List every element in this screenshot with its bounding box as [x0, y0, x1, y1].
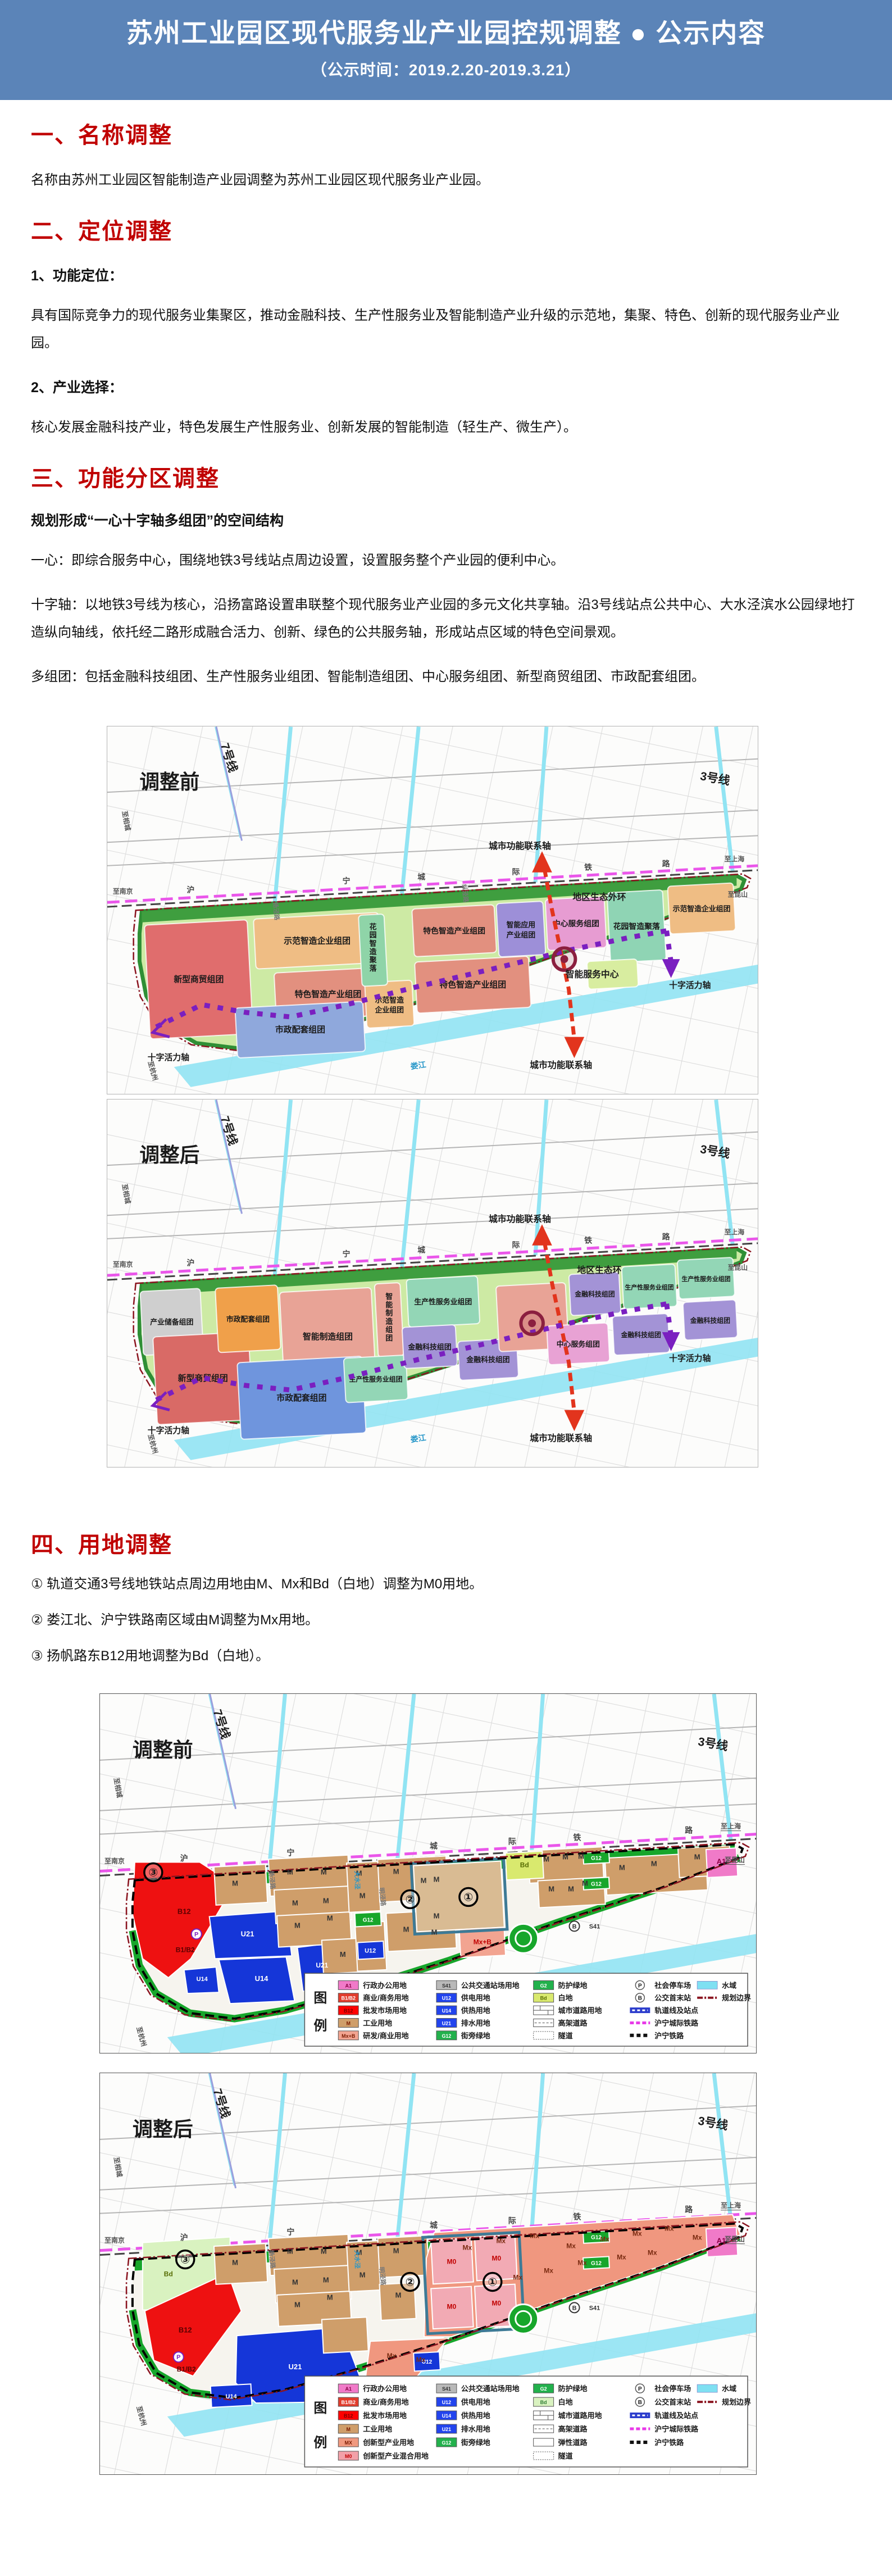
svg-text:Mx: Mx	[544, 2266, 553, 2274]
svg-text:工业用地: 工业用地	[363, 2425, 392, 2433]
svg-text:城: 城	[417, 1245, 425, 1254]
svg-text:白地: 白地	[558, 1993, 573, 2002]
svg-text:至上海: 至上海	[725, 855, 745, 862]
svg-text:M: M	[434, 1875, 440, 1883]
svg-text:社会停车场: 社会停车场	[654, 2384, 691, 2393]
svg-text:M: M	[393, 1867, 399, 1875]
svg-text:调整前: 调整前	[139, 771, 199, 793]
svg-text:图: 图	[313, 1991, 327, 2006]
section3-p3: 多组团：包括金融科技组团、生产性服务业组团、智能制造组团、中心服务组团、新型商贸…	[31, 663, 858, 690]
landuse-item-1: ① 轨道交通3号线地铁站点周边用地由M、Mx和Bd（白地）调整为M0用地。	[31, 1574, 858, 1595]
svg-text:生产性服务业组团: 生产性服务业组团	[349, 1375, 403, 1383]
svg-text:P: P	[638, 2386, 642, 2392]
svg-text:至上海: 至上海	[725, 1228, 745, 1235]
svg-text:宁: 宁	[343, 876, 351, 885]
svg-text:特色智造产业组团: 特色智造产业组团	[423, 926, 485, 935]
svg-text:地区生态环: 地区生态环	[577, 1265, 621, 1275]
svg-text:际: 际	[508, 2216, 516, 2225]
svg-text:S41: S41	[589, 1923, 600, 1930]
svg-text:①: ①	[463, 1891, 473, 1903]
section2-heading: 二、定位调整	[31, 213, 892, 246]
svg-text:M: M	[568, 1884, 574, 1893]
svg-text:B1/B2: B1/B2	[342, 2400, 356, 2405]
svg-text:M: M	[582, 1879, 588, 1887]
svg-text:M: M	[431, 1928, 438, 1936]
svg-text:②: ②	[406, 2276, 415, 2288]
svg-text:③: ③	[148, 1866, 158, 1879]
svg-text:高架道路: 高架道路	[558, 2425, 588, 2433]
svg-text:智能制造组团: 智能制造组团	[385, 1292, 393, 1342]
svg-text:铁: 铁	[574, 2212, 581, 2221]
svg-text:宁: 宁	[343, 1249, 351, 1258]
svg-text:U14: U14	[255, 1974, 269, 1983]
svg-text:十字活力轴: 十字活力轴	[669, 1353, 711, 1363]
svg-text:供电用地: 供电用地	[461, 1993, 490, 2002]
svg-text:M: M	[294, 2300, 301, 2309]
svg-text:白地: 白地	[558, 2398, 573, 2406]
svg-text:M: M	[340, 1950, 346, 1959]
svg-text:至昆山: 至昆山	[728, 1264, 748, 1271]
svg-text:U12: U12	[442, 2400, 451, 2405]
svg-text:城: 城	[417, 872, 425, 881]
svg-text:U21: U21	[289, 2363, 302, 2371]
concept-map-after: 产业储备组团新型商贸组团市政配套组团智能制造组团智能制造组团市政配套组团生产性服…	[107, 1099, 892, 1468]
svg-text:金融科技组团: 金融科技组团	[621, 1331, 661, 1339]
svg-text:供电用地: 供电用地	[461, 2398, 490, 2406]
svg-text:B1/B2: B1/B2	[177, 2365, 196, 2373]
svg-text:花园智造聚落: 花园智造聚落	[369, 922, 377, 972]
svg-text:Mx: Mx	[648, 2248, 657, 2256]
svg-text:Mx: Mx	[665, 2224, 674, 2232]
notice-page: 苏州工业园区现代服务业产业园控规调整 ● 公示内容 （公示时间：2019.2.2…	[0, 0, 892, 2576]
svg-text:智能服务中心: 智能服务中心	[566, 969, 619, 979]
svg-text:P: P	[194, 1931, 198, 1938]
svg-text:M: M	[232, 2258, 238, 2266]
svg-text:A1: A1	[345, 1983, 352, 1988]
svg-text:至南京: 至南京	[104, 2236, 125, 2244]
svg-text:地区生态外环: 地区生态外环	[572, 892, 626, 902]
svg-text:铁: 铁	[584, 1235, 592, 1244]
svg-text:调整后: 调整后	[133, 2118, 193, 2141]
svg-text:至南京: 至南京	[113, 1260, 133, 1268]
svg-text:城: 城	[430, 1841, 438, 1850]
notice-period: （公示时间：2019.2.20-2019.3.21）	[0, 58, 892, 80]
svg-text:街旁绿地: 街旁绿地	[461, 2438, 490, 2447]
svg-text:产业储备组团: 产业储备组团	[150, 1317, 193, 1326]
section3-heading: 三、功能分区调整	[31, 460, 892, 493]
svg-text:U14: U14	[226, 2393, 238, 2400]
svg-text:G12: G12	[591, 1881, 602, 1887]
svg-text:调整前: 调整前	[133, 1738, 193, 1761]
svg-text:B: B	[638, 1995, 642, 2001]
svg-text:至上海: 至上海	[721, 2201, 741, 2209]
landuse-map-before-svg: B12B1/B2U21U14U14U21U12MMMMMMMMMMMMMMMMM…	[99, 1693, 757, 2053]
svg-text:公共交通站场用地: 公共交通站场用地	[461, 1981, 520, 1989]
svg-text:M: M	[393, 2246, 399, 2255]
svg-text:M: M	[359, 1891, 366, 1900]
svg-text:Mx: Mx	[496, 2237, 506, 2245]
concept-map-after-svg: 产业储备组团新型商贸组团市政配套组团智能制造组团智能制造组团市政配套组团生产性服…	[107, 1099, 758, 1468]
svg-text:轨道线及站点: 轨道线及站点	[654, 2006, 698, 2015]
landuse-item-2: ② 娄江北、沪宁铁路南区域由M调整为Mx用地。	[31, 1610, 858, 1631]
svg-text:际: 际	[508, 1837, 516, 1846]
svg-text:金融科技组团: 金融科技组团	[466, 1355, 509, 1364]
svg-text:Mx: Mx	[632, 2229, 642, 2237]
svg-text:M: M	[347, 2020, 351, 2026]
section2-sub2-title: 2、产业选择：	[31, 376, 892, 397]
svg-text:防护绿地: 防护绿地	[558, 2384, 588, 2393]
svg-text:行政办公用地: 行政办公用地	[362, 2384, 407, 2393]
svg-text:M: M	[321, 2247, 327, 2255]
svg-text:生产性服务业组团: 生产性服务业组团	[625, 1283, 674, 1291]
svg-text:B1/B2: B1/B2	[176, 1946, 195, 1953]
svg-text:弹性道路: 弹性道路	[558, 2438, 588, 2447]
svg-text:防护绿地: 防护绿地	[558, 1981, 588, 1989]
svg-text:水域: 水域	[722, 1981, 736, 1989]
svg-text:沪宁城际铁路: 沪宁城际铁路	[654, 2425, 699, 2433]
svg-text:U14: U14	[442, 2413, 451, 2419]
svg-text:Mx: Mx	[387, 2352, 397, 2360]
svg-text:M: M	[651, 1859, 657, 1868]
svg-text:金融科技组团: 金融科技组团	[574, 1290, 615, 1298]
svg-text:金融科技组团: 金融科技组团	[407, 1342, 451, 1351]
svg-text:Mx: Mx	[463, 2243, 472, 2251]
svg-text:Mx: Mx	[416, 2356, 426, 2364]
svg-text:M: M	[403, 1925, 409, 1933]
svg-text:例: 例	[313, 2018, 327, 2033]
svg-text:水域: 水域	[722, 2384, 736, 2393]
section1-heading: 一、名称调整	[31, 117, 892, 149]
svg-text:①: ①	[488, 2276, 497, 2288]
svg-text:新型商贸组团: 新型商贸组团	[174, 974, 224, 984]
svg-text:路: 路	[685, 1825, 693, 1834]
svg-text:市政配套组团: 市政配套组团	[226, 1315, 270, 1323]
svg-text:B12: B12	[179, 2325, 192, 2334]
svg-text:沪宁铁路: 沪宁铁路	[654, 2031, 684, 2039]
svg-text:MX: MX	[345, 2440, 352, 2446]
svg-text:B: B	[572, 1923, 577, 1930]
svg-text:Mx: Mx	[530, 2232, 539, 2239]
svg-text:供热用地: 供热用地	[461, 2411, 490, 2420]
svg-text:隧道: 隧道	[558, 2452, 573, 2460]
section1-body: 名称由苏州工业园区智能制造产业园调整为苏州工业园区现代服务业产业园。	[31, 166, 858, 194]
svg-text:S41: S41	[589, 2305, 600, 2311]
svg-text:至南京: 至南京	[104, 1856, 125, 1865]
svg-text:M0: M0	[491, 2299, 501, 2307]
svg-text:至上海: 至上海	[721, 1821, 741, 1830]
svg-text:大水泾: 大水泾	[353, 1870, 362, 1889]
svg-text:隧道: 隧道	[558, 2031, 573, 2039]
concept-map-before-svg: 新型商贸组团示范智造企业组团特色智造产业组团市政配套组团示范智造企业组团花园智造…	[107, 726, 758, 1094]
svg-text:B12: B12	[344, 2413, 353, 2419]
svg-text:路: 路	[662, 1232, 670, 1241]
svg-text:金融科技组团: 金融科技组团	[690, 1316, 730, 1324]
svg-text:U12: U12	[442, 1995, 451, 2001]
svg-text:规划边界: 规划边界	[722, 1993, 751, 2002]
section3-lead: 规划形成“一心十字轴多组团”的空间结构	[31, 510, 892, 530]
landuse-item-3: ③ 扬帆路东B12用地调整为Bd（白地）。	[31, 1646, 858, 1667]
svg-text:企业组团: 企业组团	[375, 1006, 404, 1014]
svg-text:沪: 沪	[187, 1258, 195, 1267]
svg-text:M: M	[323, 1896, 329, 1905]
svg-text:十字活力轴: 十字活力轴	[669, 980, 711, 990]
svg-text:街旁绿地: 街旁绿地	[461, 2031, 490, 2039]
svg-text:沪: 沪	[180, 2233, 188, 2242]
svg-text:S41: S41	[442, 2386, 451, 2392]
svg-text:③: ③	[180, 2254, 190, 2266]
section3-p1: 一心：即综合服务中心，围绕地铁3号线站点周边设置，设置服务整个产业园的便利中心。	[31, 547, 858, 574]
svg-text:沪宁铁路: 沪宁铁路	[654, 2438, 684, 2447]
svg-text:规划边界: 规划边界	[722, 2398, 751, 2406]
notice-content: 一、名称调整 名称由苏州工业园区智能制造产业园调整为苏州工业园区现代服务业产业园…	[0, 117, 892, 2576]
section4-heading: 四、用地调整	[31, 1526, 892, 1559]
svg-text:Bd: Bd	[540, 1995, 547, 2001]
svg-text:商业/商务用地: 商业/商务用地	[363, 2398, 408, 2406]
svg-text:铁: 铁	[574, 1833, 581, 1842]
svg-text:S41: S41	[442, 1983, 451, 1988]
section2-sub1-text: 具有国际竞争力的现代服务业集聚区，推动金融科技、生产性服务业及智能制造产业升级的…	[31, 302, 858, 357]
svg-text:商业/商务用地: 商业/商务用地	[363, 1993, 408, 2002]
svg-text:M: M	[292, 1898, 298, 1907]
svg-text:城: 城	[430, 2220, 438, 2229]
svg-text:城市功能联系轴: 城市功能联系轴	[489, 1214, 551, 1224]
svg-text:城市功能联系轴: 城市功能联系轴	[530, 1433, 592, 1443]
svg-text:社会停车场: 社会停车场	[654, 1981, 691, 1989]
page-title: 苏州工业园区现代服务业产业园控规调整 ● 公示内容	[0, 0, 892, 50]
section2-sub2-text: 核心发展金融科技产业，特色发展生产性服务业、创新发展的智能制造（轻生产、微生产）…	[31, 414, 858, 441]
svg-text:际: 际	[512, 867, 520, 876]
section-landuse-adjust: 四、用地调整 ① 轨道交通3号线地铁站点周边用地由M、Mx和Bd（白地）调整为M…	[0, 1526, 892, 1668]
svg-text:G12: G12	[591, 1855, 602, 1861]
svg-text:特色智造产业组团: 特色智造产业组团	[439, 979, 506, 989]
svg-text:宁: 宁	[286, 2227, 294, 2236]
section-position-adjust: 二、定位调整 1、功能定位： 具有国际竞争力的现代服务业集聚区，推动金融科技、生…	[0, 213, 892, 441]
svg-text:G12: G12	[363, 1917, 374, 1923]
svg-text:宁: 宁	[286, 1848, 294, 1857]
svg-text:城市道路用地: 城市道路用地	[558, 2006, 602, 2015]
svg-text:市政配套组团: 市政配套组团	[275, 1024, 325, 1034]
svg-text:B: B	[638, 2400, 642, 2406]
svg-text:Bd: Bd	[540, 2400, 547, 2405]
svg-text:M: M	[619, 1863, 625, 1871]
svg-text:公交首末站: 公交首末站	[654, 2398, 691, 2406]
section-function-zone-adjust: 三、功能分区调整 规划形成“一心十字轴多组团”的空间结构 一心：即综合服务中心，…	[0, 460, 892, 691]
svg-text:智能应用: 智能应用	[507, 920, 535, 929]
landuse-map-after: BdB12B1/B2U21U14U12MMMMMMMMMMMM0M0M0M0Mx…	[99, 2073, 892, 2475]
svg-text:排水用地: 排水用地	[461, 2019, 490, 2027]
svg-text:M: M	[562, 1852, 568, 1861]
svg-text:沪: 沪	[180, 1853, 188, 1862]
svg-text:调整后: 调整后	[139, 1144, 199, 1166]
svg-text:G2: G2	[540, 2386, 547, 2392]
svg-text:B12: B12	[344, 2008, 353, 2014]
legend: 图例A1行政办公用地B1/B2商业/商务用地B12批发市场用地M工业用地Mx+B…	[304, 1973, 751, 2046]
svg-text:公共交通站场用地: 公共交通站场用地	[461, 2384, 520, 2393]
svg-text:B12: B12	[178, 1907, 191, 1915]
svg-text:U21: U21	[241, 1929, 254, 1938]
svg-text:大水泾: 大水泾	[353, 2250, 362, 2268]
svg-text:P: P	[176, 2354, 180, 2361]
svg-text:B: B	[572, 2305, 577, 2311]
svg-text:示范智造企业组团: 示范智造企业组团	[284, 935, 351, 946]
svg-text:沪宁城际铁路: 沪宁城际铁路	[654, 2019, 699, 2027]
svg-text:M: M	[694, 1852, 700, 1861]
svg-text:U21: U21	[316, 1961, 328, 1969]
svg-text:城市功能联系轴: 城市功能联系轴	[489, 841, 551, 851]
svg-text:例: 例	[313, 2435, 327, 2450]
svg-text:行政办公用地: 行政办公用地	[362, 1981, 407, 1989]
svg-text:Bd: Bd	[164, 2270, 173, 2278]
banner: 苏州工业园区现代服务业产业园控规调整 ● 公示内容 （公示时间：2019.2.2…	[0, 0, 892, 100]
svg-text:Mx: Mx	[513, 2273, 522, 2281]
svg-text:Mx+B: Mx+B	[474, 1938, 492, 1946]
svg-text:中心服务组团: 中心服务组团	[553, 919, 599, 928]
svg-text:G2: G2	[540, 1983, 547, 1988]
svg-text:路: 路	[685, 2205, 693, 2214]
svg-text:花园智造聚落: 花园智造聚落	[613, 921, 661, 930]
svg-text:图: 图	[313, 2401, 327, 2416]
svg-text:城市道路用地: 城市道路用地	[558, 2411, 602, 2420]
svg-text:示范智造企业组团: 示范智造企业组团	[672, 904, 731, 912]
svg-text:G12: G12	[442, 2440, 451, 2446]
svg-text:产业组团: 产业组团	[507, 930, 536, 939]
svg-text:沪: 沪	[187, 885, 195, 894]
svg-text:M: M	[548, 1884, 554, 1893]
svg-text:M: M	[347, 2427, 351, 2432]
svg-text:G12: G12	[591, 2260, 602, 2266]
svg-text:至昆山: 至昆山	[725, 1855, 745, 1864]
svg-text:M: M	[327, 1914, 333, 1922]
svg-text:M: M	[294, 1921, 301, 1929]
svg-text:Mx: Mx	[617, 2253, 626, 2261]
svg-text:G12: G12	[442, 2033, 451, 2038]
svg-text:批发市场用地: 批发市场用地	[363, 2411, 407, 2420]
svg-text:批发市场用地: 批发市场用地	[363, 2006, 407, 2015]
svg-text:至昆山: 至昆山	[725, 2234, 745, 2243]
svg-text:M: M	[232, 1879, 238, 1887]
svg-text:M: M	[327, 2293, 333, 2301]
svg-text:U21: U21	[442, 2427, 451, 2432]
concept-map-before: 新型商贸组团示范智造企业组团特色智造产业组团市政配套组团示范智造企业组团花园智造…	[107, 726, 892, 1094]
svg-text:M: M	[578, 1852, 584, 1860]
svg-text:②: ②	[406, 1893, 415, 1906]
svg-text:研发/商业用地: 研发/商业用地	[363, 2031, 408, 2039]
svg-text:特色智造产业组团: 特色智造产业组团	[295, 989, 362, 999]
svg-text:Mx: Mx	[693, 2233, 702, 2241]
svg-text:生产性服务业组团: 生产性服务业组团	[414, 1297, 472, 1306]
svg-text:M: M	[321, 1868, 327, 1876]
svg-text:Mx: Mx	[577, 2259, 587, 2266]
svg-text:工业用地: 工业用地	[363, 2019, 392, 2027]
svg-text:U21: U21	[442, 2020, 451, 2026]
svg-text:路: 路	[662, 858, 670, 867]
svg-text:M0: M0	[447, 2302, 457, 2310]
svg-text:M: M	[287, 2247, 293, 2255]
svg-text:U14: U14	[197, 1976, 208, 1983]
svg-text:智能制造组团: 智能制造组团	[303, 1331, 353, 1341]
svg-text:Bd: Bd	[520, 1861, 529, 1869]
svg-text:A1: A1	[345, 2386, 352, 2392]
svg-text:Mx+B: Mx+B	[342, 2033, 356, 2038]
svg-text:排水用地: 排水用地	[461, 2425, 490, 2433]
svg-text:高架道路: 高架道路	[558, 2019, 588, 2027]
svg-text:Mx: Mx	[566, 2242, 576, 2250]
svg-text:际: 际	[512, 1240, 520, 1249]
svg-text:M: M	[287, 1868, 293, 1876]
svg-text:M0: M0	[345, 2454, 352, 2459]
svg-text:公交首末站: 公交首末站	[654, 1993, 691, 2002]
svg-text:生产性服务业组团: 生产性服务业组团	[681, 1275, 730, 1283]
svg-text:U14: U14	[442, 2008, 451, 2014]
svg-text:P: P	[638, 1983, 642, 1989]
svg-text:城市功能联系轴: 城市功能联系轴	[530, 1060, 592, 1070]
svg-text:M: M	[292, 2278, 298, 2286]
section3-p2: 十字轴：以地铁3号线为核心，沿扬富路设置串联整个现代服务业产业园的多元文化共享轴…	[31, 591, 858, 646]
svg-text:铁: 铁	[584, 862, 592, 871]
section2-sub1-title: 1、功能定位：	[31, 265, 892, 285]
svg-text:M: M	[359, 2270, 366, 2279]
svg-text:M: M	[395, 2291, 402, 2299]
section-name-adjust: 一、名称调整 名称由苏州工业园区智能制造产业园调整为苏州工业园区现代服务业产业园…	[0, 117, 892, 194]
svg-text:U12: U12	[365, 1947, 376, 1954]
svg-text:G12: G12	[591, 2234, 602, 2241]
landuse-map-after-svg: BdB12B1/B2U21U14U12MMMMMMMMMMMM0M0M0M0Mx…	[99, 2073, 757, 2475]
svg-text:M: M	[434, 1911, 440, 1920]
legend: 图例A1行政办公用地B1/B2商业/商务用地B12批发市场用地M工业用地MX创新…	[304, 2376, 751, 2467]
svg-text:至昆山: 至昆山	[728, 891, 748, 898]
landuse-map-before: B12B1/B2U21U14U14U21U12MMMMMMMMMMMMMMMMM…	[99, 1693, 892, 2053]
svg-text:B1/B2: B1/B2	[342, 1995, 356, 2001]
svg-text:供热用地: 供热用地	[461, 2006, 490, 2015]
svg-text:至南京: 至南京	[113, 887, 133, 895]
svg-text:M0: M0	[491, 2254, 501, 2262]
svg-text:市政配套组团: 市政配套组团	[276, 1392, 326, 1402]
svg-text:M: M	[543, 1855, 549, 1863]
svg-text:M0: M0	[447, 2257, 457, 2265]
svg-text:M: M	[421, 1876, 427, 1884]
bottom-whitespace	[0, 2475, 892, 2576]
svg-text:M: M	[323, 2275, 329, 2284]
svg-text:创新型产业混合用地: 创新型产业混合用地	[362, 2452, 429, 2460]
svg-text:轨道线及站点: 轨道线及站点	[654, 2411, 698, 2420]
svg-text:创新型产业用地: 创新型产业用地	[362, 2438, 414, 2447]
